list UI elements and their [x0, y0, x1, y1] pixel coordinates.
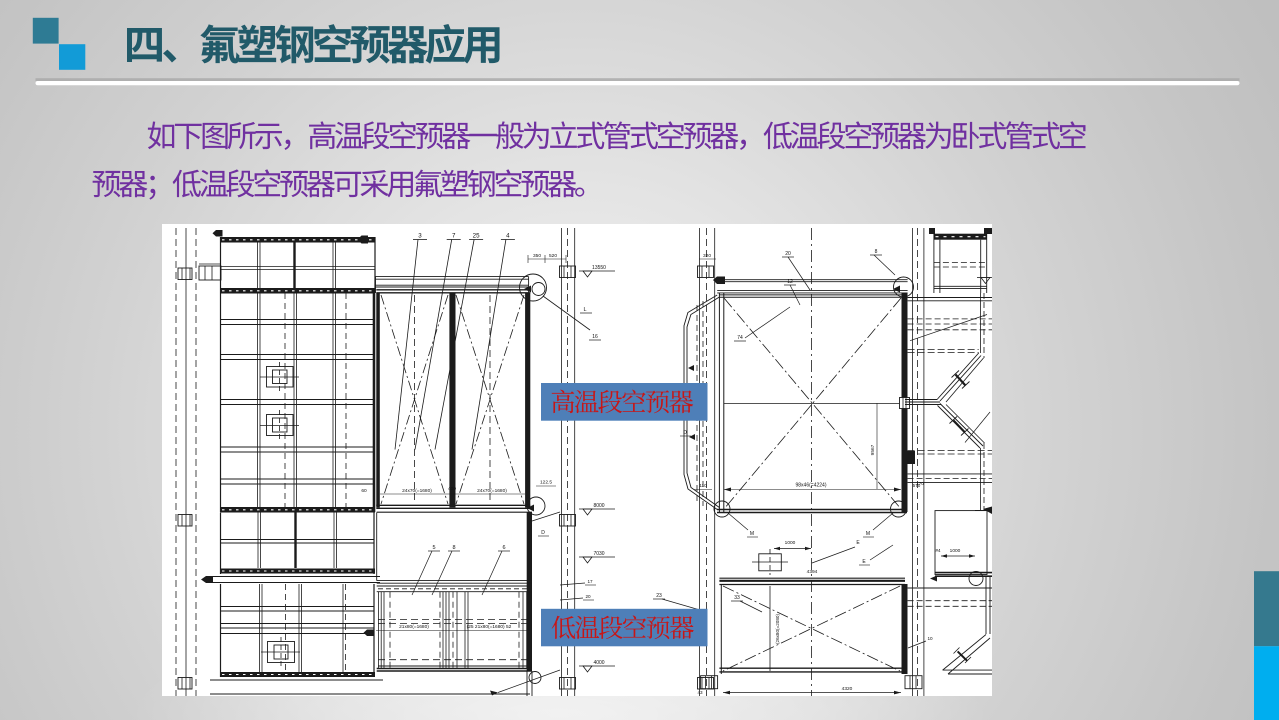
svg-text:60: 60 — [361, 488, 367, 494]
svg-text:21x80(=1680): 21x80(=1680) — [399, 624, 429, 630]
svg-text:M: M — [750, 531, 754, 537]
svg-text:M: M — [866, 531, 870, 537]
svg-text:98x46(=4224): 98x46(=4224) — [796, 483, 827, 489]
svg-text:20: 20 — [785, 251, 791, 257]
svg-text:12: 12 — [787, 279, 793, 285]
svg-text:1000: 1000 — [950, 548, 961, 554]
svg-text:320: 320 — [703, 253, 711, 259]
svg-text:25: 25 — [473, 233, 480, 240]
svg-text:D: D — [683, 430, 687, 436]
svg-text:122.5: 122.5 — [540, 480, 552, 486]
svg-text:24x70(=1680): 24x70(=1680) — [477, 488, 507, 494]
svg-text:(26x80(=2080): (26x80(=2080) — [775, 614, 780, 644]
svg-text:6: 6 — [502, 545, 505, 551]
svg-text:4320: 4320 — [842, 686, 853, 692]
svg-text:8000: 8000 — [593, 503, 604, 509]
svg-text:520: 520 — [549, 253, 557, 259]
svg-text:D: D — [541, 530, 545, 536]
svg-text:33: 33 — [734, 595, 740, 601]
svg-text:350: 350 — [533, 253, 541, 259]
svg-text:13550: 13550 — [592, 265, 606, 271]
svg-text:400: 400 — [448, 486, 456, 492]
svg-text:4: 4 — [506, 233, 510, 240]
svg-text:110: 110 — [699, 483, 707, 488]
svg-text:7030: 7030 — [593, 551, 604, 557]
svg-text:9567: 9567 — [870, 444, 876, 455]
svg-text:L: L — [583, 307, 586, 313]
svg-text:8: 8 — [875, 249, 878, 255]
svg-text:10: 10 — [927, 636, 933, 641]
svg-text:3: 3 — [418, 233, 422, 240]
svg-text:7: 7 — [452, 233, 456, 240]
svg-text:23: 23 — [656, 593, 662, 599]
svg-text:24x70(=1680): 24x70(=1680) — [402, 488, 432, 494]
svg-text:4394: 4394 — [807, 569, 818, 575]
svg-text:43: 43 — [697, 690, 703, 695]
svg-text:74: 74 — [737, 335, 743, 341]
svg-text:20: 20 — [585, 594, 591, 599]
svg-text:4000: 4000 — [593, 660, 604, 666]
svg-text:8: 8 — [452, 545, 455, 551]
svg-text:#4: #4 — [935, 548, 941, 553]
svg-text:5: 5 — [432, 545, 435, 551]
svg-text:17: 17 — [587, 579, 593, 584]
svg-text:(25 21x80(=1680) 52: (25 21x80(=1680) 52 — [467, 624, 512, 630]
svg-text:170: 170 — [916, 481, 924, 486]
svg-text:1000: 1000 — [785, 540, 796, 546]
svg-text:16: 16 — [592, 334, 598, 340]
